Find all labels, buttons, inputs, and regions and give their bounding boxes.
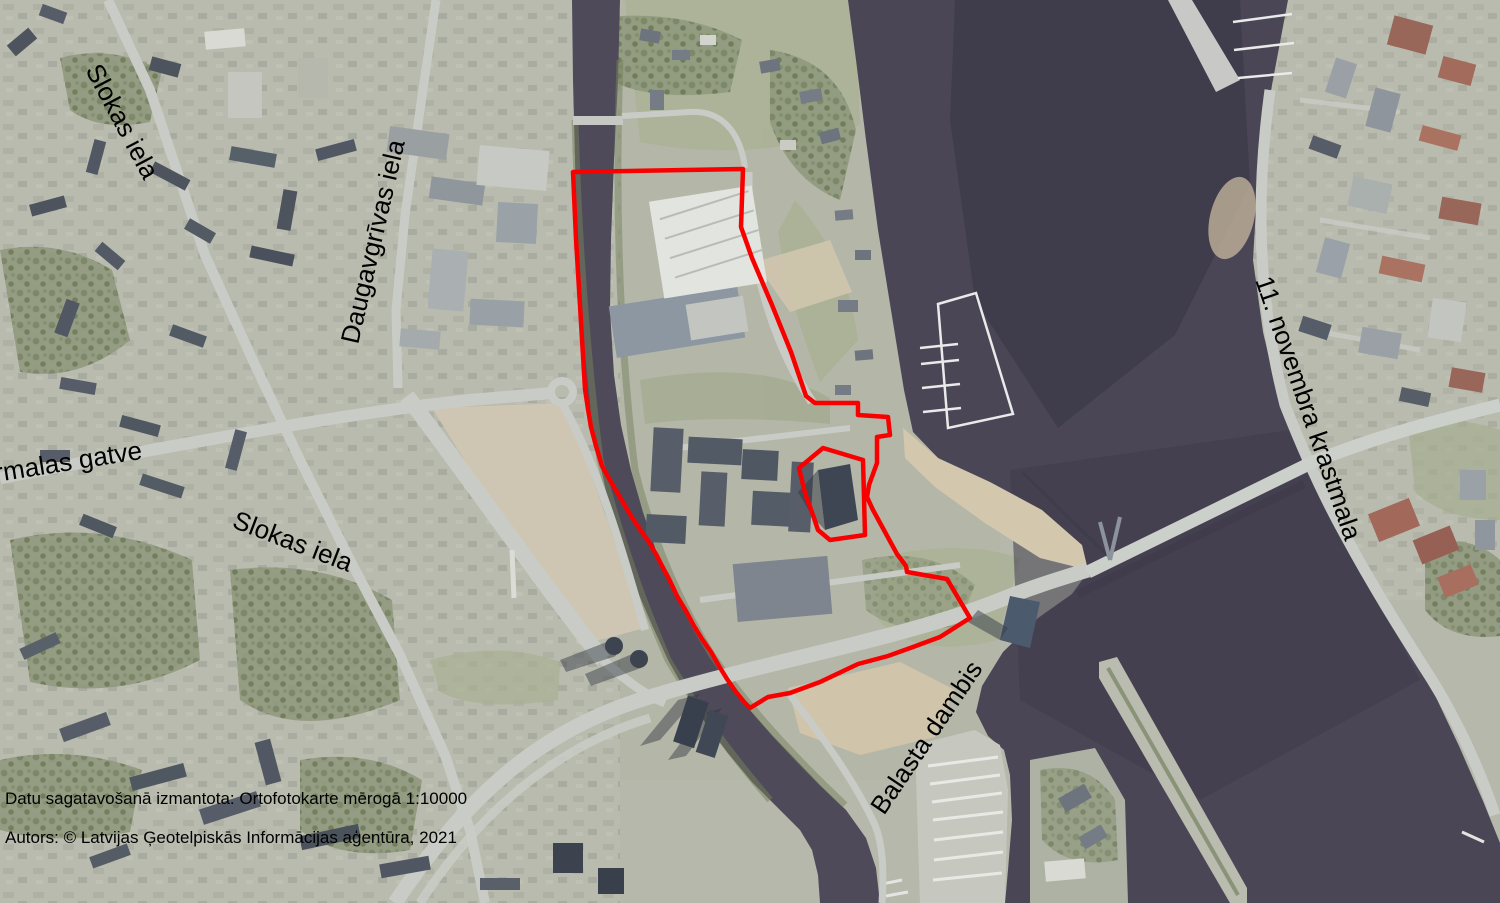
credit-source: Datu sagatavošanā izmantota: Ortofotokar… bbox=[5, 789, 467, 808]
ortho-map: Slokas iela Daugavgrīvas iela rmalas gat… bbox=[0, 0, 1500, 903]
depot-building bbox=[733, 556, 833, 622]
canal-footbridge bbox=[573, 116, 623, 125]
pedestrian-overpass bbox=[512, 550, 514, 598]
map-canvas: Slokas iela Daugavgrīvas iela rmalas gat… bbox=[0, 0, 1500, 903]
credit-author: Autors: © Latvijas Ģeotelpiskās Informāc… bbox=[5, 828, 457, 847]
olympic-center bbox=[649, 185, 767, 298]
